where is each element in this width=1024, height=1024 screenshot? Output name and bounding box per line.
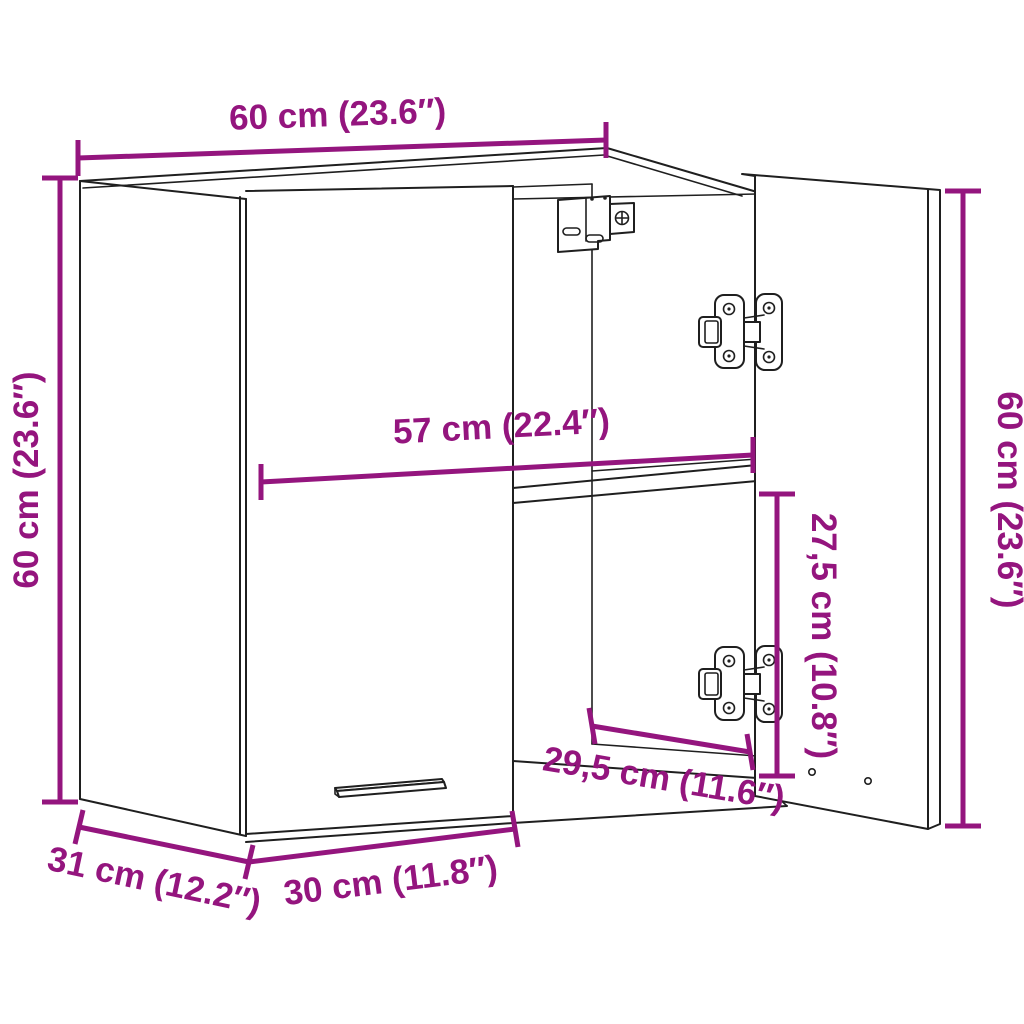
wall-mount-bracket [558,196,634,252]
dimension-label-right-height: 60 cm (23.6″) [990,391,1024,608]
dimension-top-width: 60 cm (23.6″) [78,91,606,176]
dimension-interior-width: 57 cm (22.4″) [261,401,753,500]
dimension-interior-depth: 29,5 cm (11.6″) [540,708,788,818]
door-handle [335,779,446,797]
dimension-label-top-width: 60 cm (23.6″) [228,91,446,138]
dimension-label-side-depth: 31 cm (12.2″) [44,839,265,922]
dimension-right-height: 60 cm (23.6″) [945,191,1024,826]
hinge-top [699,294,782,370]
dimension-label-left-height: 60 cm (23.6″) [7,371,46,588]
dimension-label-interior-height: 27,5 cm (10.8″) [804,513,843,759]
hinge-bottom [699,646,782,722]
dimension-label-interior-width: 57 cm (22.4″) [392,401,611,451]
cabinet-outline [80,148,787,842]
dimension-label-door-width: 30 cm (11.8″) [281,848,499,913]
product-dimension-diagram: 60 cm (23.6″) 60 cm (23.6″) 60 cm (23.6″… [0,0,1024,1024]
dimension-side-depth: 31 cm (12.2″) [44,810,265,922]
dimension-left-height: 60 cm (23.6″) [7,178,78,802]
diagram-canvas: 60 cm (23.6″) 60 cm (23.6″) 60 cm (23.6″… [0,0,1024,1024]
